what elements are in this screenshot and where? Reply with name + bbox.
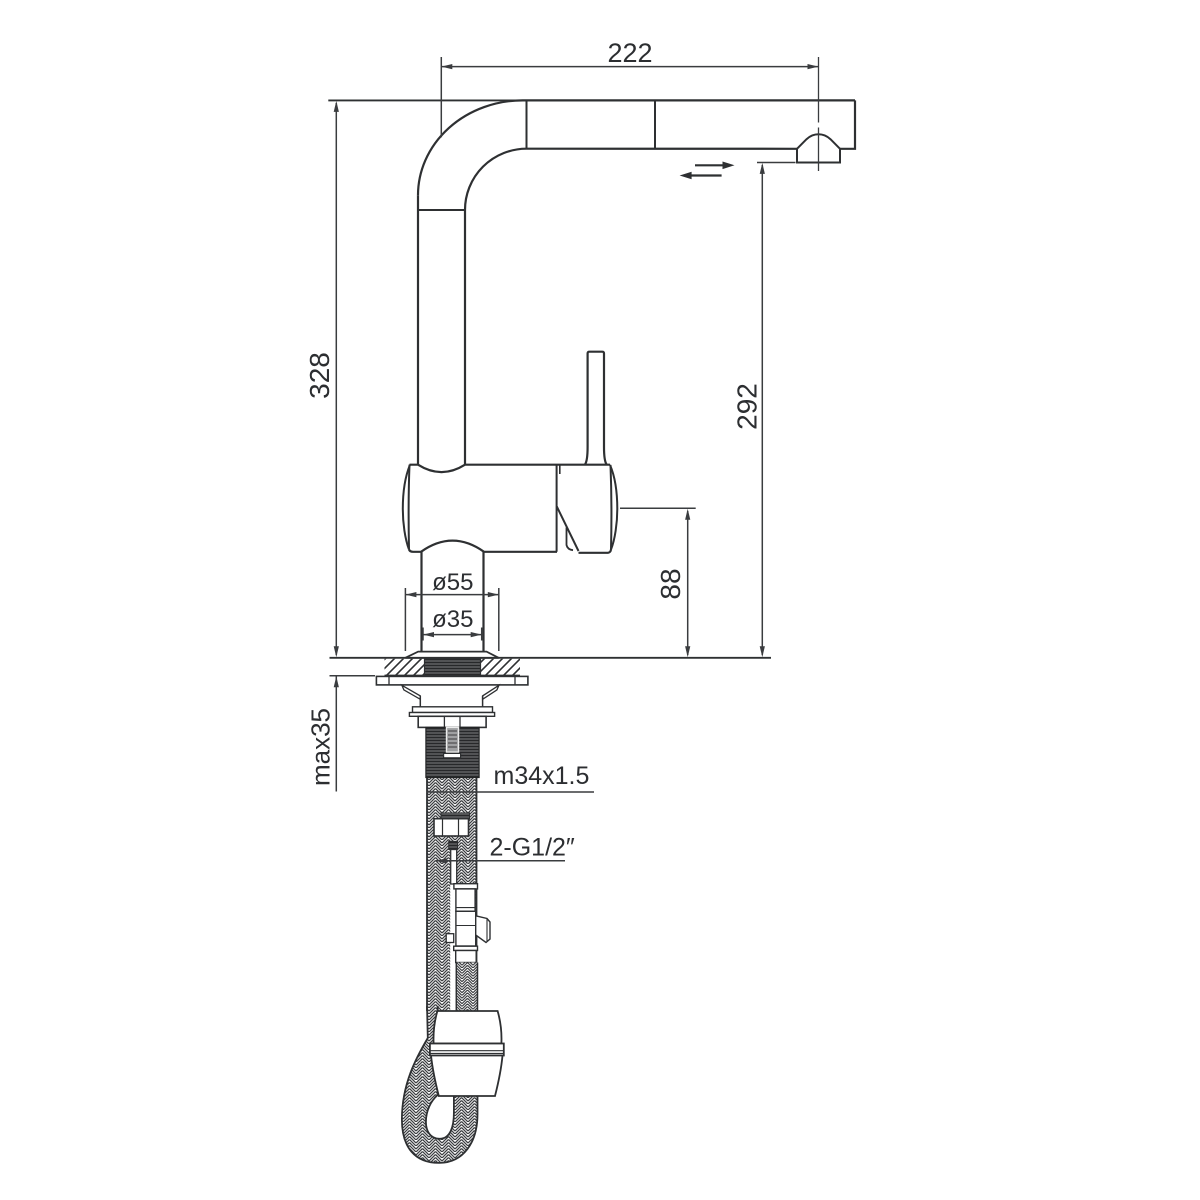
svg-text:328: 328 (304, 352, 335, 399)
svg-text:2-G1/2″: 2-G1/2″ (490, 834, 575, 862)
svg-text:222: 222 (607, 38, 652, 68)
svg-text:292: 292 (732, 383, 763, 430)
svg-text:m34x1.5: m34x1.5 (494, 762, 590, 790)
svg-text:max35: max35 (306, 708, 336, 786)
svg-text:ø35: ø35 (432, 606, 473, 633)
svg-text:88: 88 (655, 568, 686, 599)
svg-text:ø55: ø55 (432, 569, 473, 596)
